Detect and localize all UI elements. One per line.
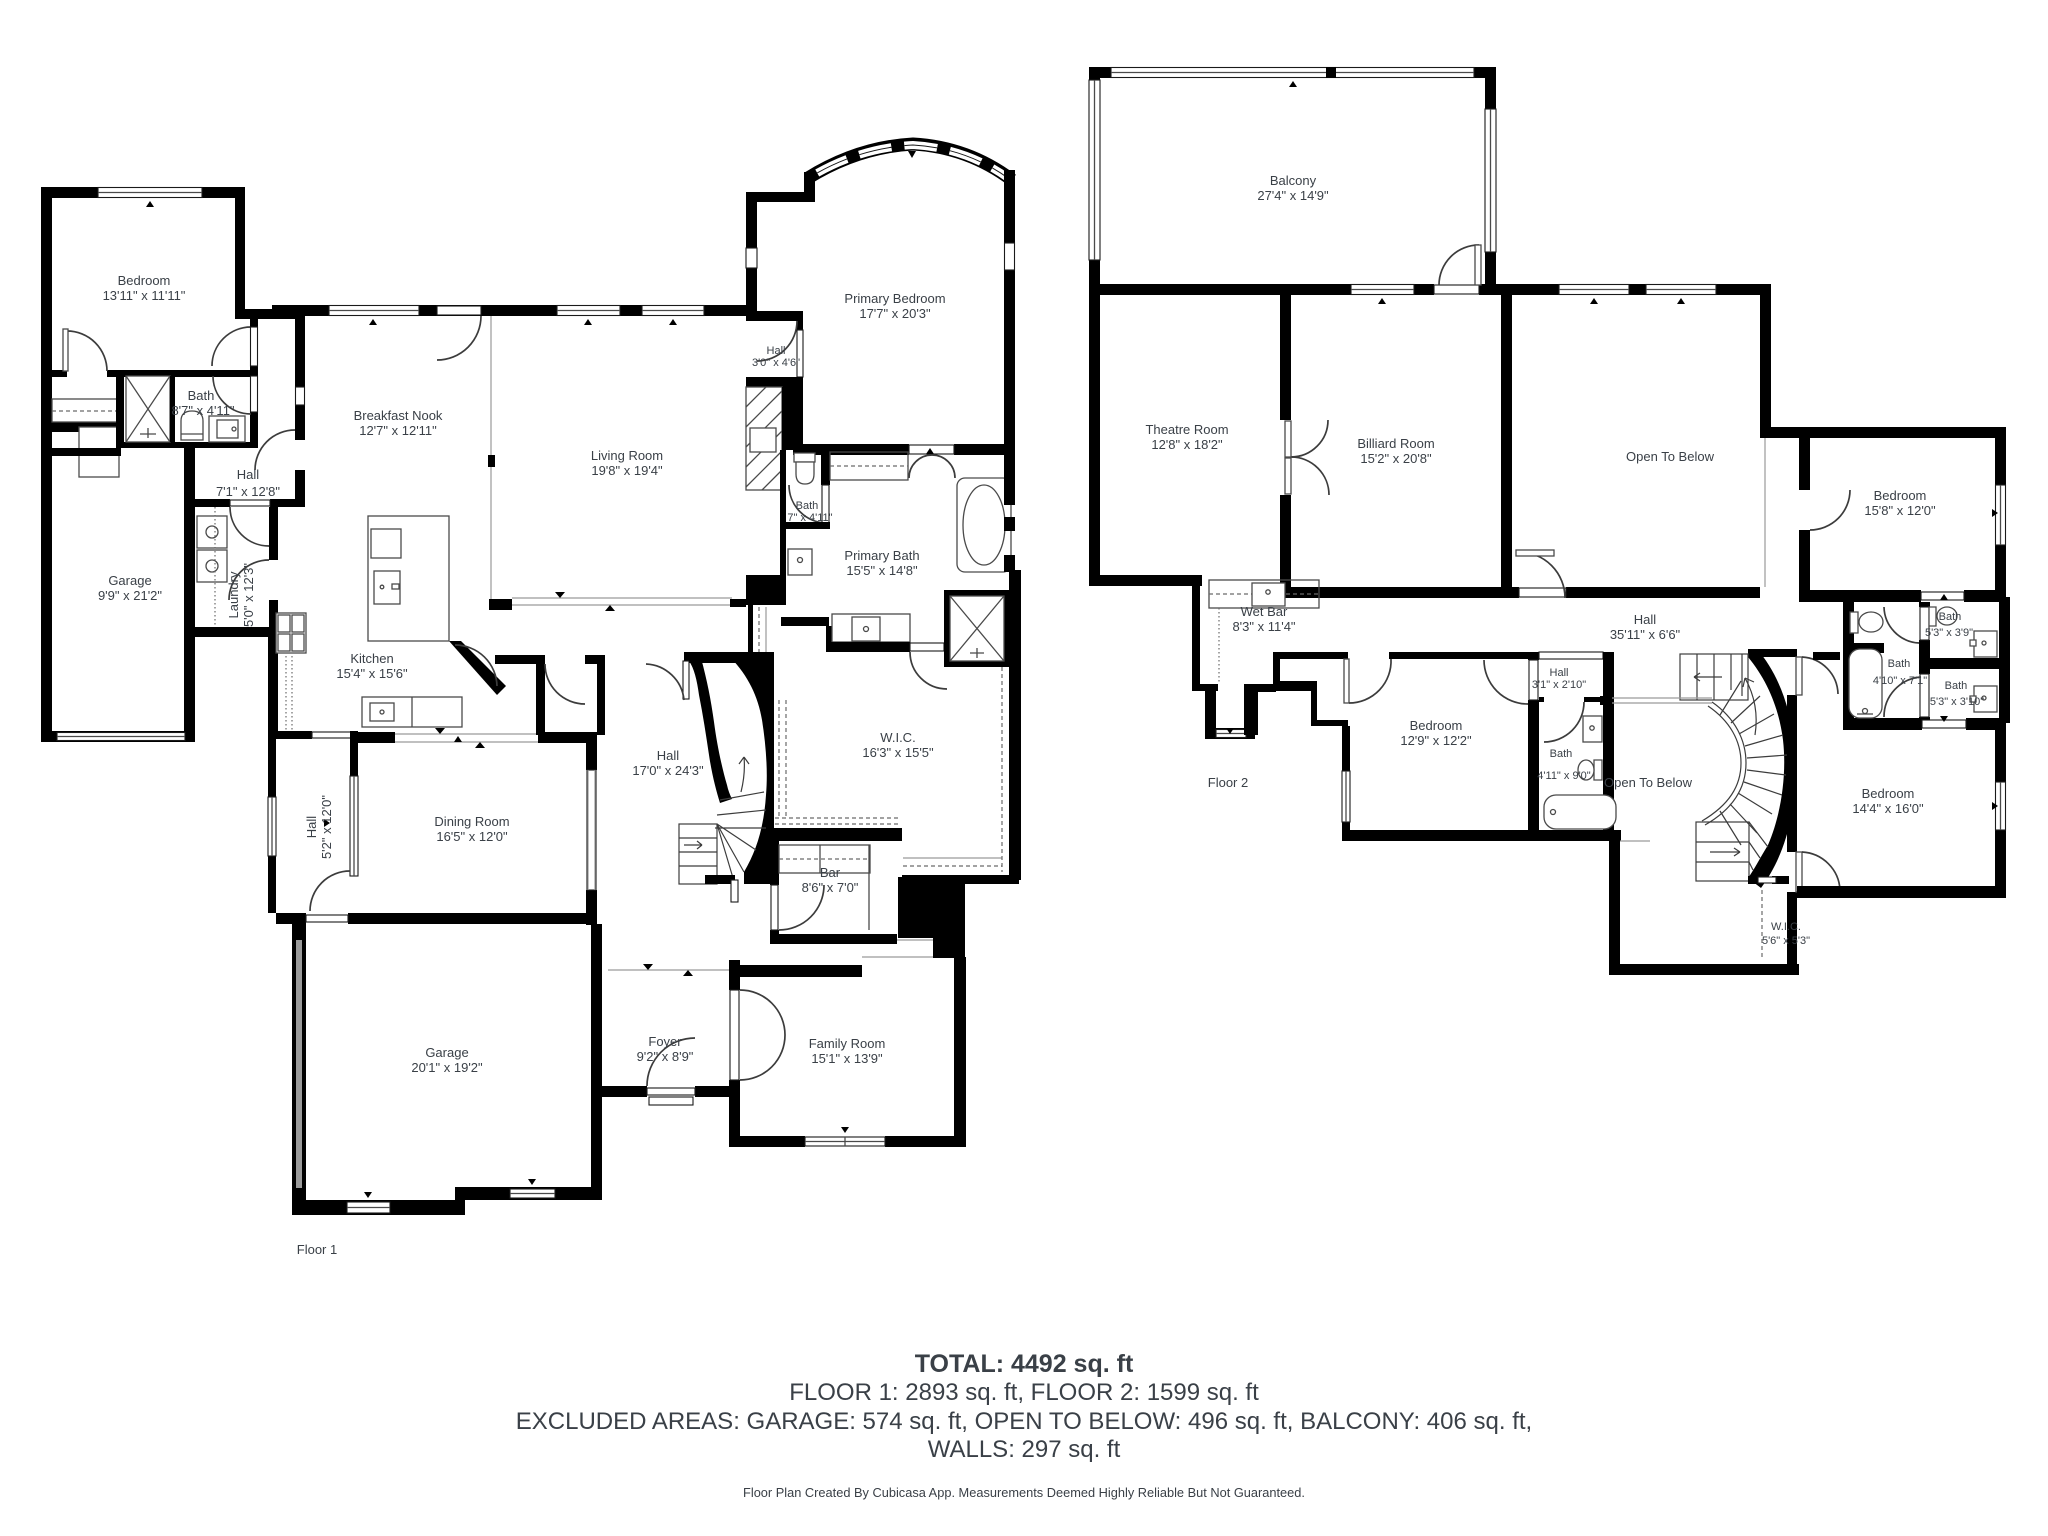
svg-text:Hall: Hall [1550, 667, 1569, 679]
svg-text:Open To Below: Open To Below [1626, 449, 1715, 464]
svg-text:8'3" x 11'4": 8'3" x 11'4" [1232, 619, 1295, 634]
svg-text:12'8" x 18'2": 12'8" x 18'2" [1151, 437, 1223, 452]
svg-text:Bedroom: Bedroom [118, 273, 171, 288]
svg-text:Primary Bath: Primary Bath [844, 548, 919, 563]
svg-text:15'4" x 15'6": 15'4" x 15'6" [336, 666, 408, 681]
svg-text:Bath: Bath [1945, 680, 1968, 692]
svg-text:Bath: Bath [796, 500, 819, 512]
svg-text:35'11" x 6'6": 35'11" x 6'6" [1610, 627, 1681, 642]
svg-text:Garage: Garage [425, 1045, 468, 1060]
svg-text:16'3" x 15'5": 16'3" x 15'5" [862, 745, 934, 760]
svg-text:FLOOR 1: 2893 sq. ft, FLOOR 2:: FLOOR 1: 2893 sq. ft, FLOOR 2: 1599 sq. … [789, 1379, 1259, 1406]
svg-text:4'11" x 9'0": 4'11" x 9'0" [1537, 770, 1590, 782]
svg-text:WALLS: 297 sq. ft: WALLS: 297 sq. ft [928, 1436, 1121, 1463]
svg-text:3'1" x 2'10": 3'1" x 2'10" [1532, 679, 1586, 691]
svg-text:Hall: Hall [1634, 612, 1657, 627]
svg-text:17'0" x 24'3": 17'0" x 24'3" [632, 763, 704, 778]
svg-text:Garage: Garage [108, 573, 151, 588]
svg-text:Family Room: Family Room [809, 1036, 886, 1051]
svg-text:15'1" x 13'9": 15'1" x 13'9" [811, 1051, 883, 1066]
svg-text:Dining Room: Dining Room [434, 814, 509, 829]
svg-text:Bedroom: Bedroom [1410, 718, 1463, 733]
svg-text:Living Room: Living Room [591, 448, 663, 463]
svg-text:Bath: Bath [188, 388, 215, 403]
svg-text:Primary Bedroom: Primary Bedroom [844, 291, 945, 306]
svg-text:12'7" x 12'11": 12'7" x 12'11" [359, 423, 437, 438]
svg-text:Bath: Bath [1888, 658, 1911, 670]
svg-text:Bedroom: Bedroom [1862, 786, 1915, 801]
svg-text:8'7" x 4'11": 8'7" x 4'11" [171, 403, 234, 418]
svg-text:7" x 4'11": 7" x 4'11" [787, 512, 832, 524]
svg-text:19'8" x 19'4": 19'8" x 19'4" [591, 463, 663, 478]
svg-text:7'1" x 12'8": 7'1" x 12'8" [216, 484, 280, 499]
svg-text:15'2" x 20'8": 15'2" x 20'8" [1360, 451, 1432, 466]
svg-text:Balcony: Balcony [1270, 173, 1317, 188]
svg-text:Billiard Room: Billiard Room [1357, 436, 1434, 451]
svg-text:Bar: Bar [820, 865, 841, 880]
svg-text:5'0" x 12'3": 5'0" x 12'3" [241, 563, 256, 627]
svg-text:9'2" x 8'9": 9'2" x 8'9" [637, 1049, 694, 1064]
svg-text:27'4" x 14'9": 27'4" x 14'9" [1257, 188, 1329, 203]
svg-text:20'1" x 19'2": 20'1" x 19'2" [411, 1060, 483, 1075]
svg-text:Floor 1: Floor 1 [297, 1242, 337, 1257]
svg-text:TOTAL: 4492 sq. ft: TOTAL: 4492 sq. ft [915, 1350, 1134, 1378]
svg-text:Floor 2: Floor 2 [1208, 775, 1248, 790]
svg-text:Bath: Bath [1550, 748, 1573, 760]
svg-text:Wet Bar: Wet Bar [1241, 604, 1288, 619]
svg-text:Laundry: Laundry [226, 571, 241, 618]
svg-text:Foyer: Foyer [648, 1034, 682, 1049]
svg-text:12'9" x 12'2": 12'9" x 12'2" [1400, 733, 1472, 748]
svg-text:W.I.C.: W.I.C. [880, 730, 915, 745]
svg-text:5'2" x 12'0": 5'2" x 12'0" [319, 795, 334, 859]
svg-text:Open To Below: Open To Below [1604, 775, 1693, 790]
svg-text:5'6" x 5'3": 5'6" x 5'3" [1762, 935, 1810, 947]
svg-text:Bedroom: Bedroom [1874, 488, 1927, 503]
svg-text:9'9" x 21'2": 9'9" x 21'2" [98, 588, 162, 603]
svg-text:5'3" x 3'9": 5'3" x 3'9" [1925, 627, 1973, 639]
svg-text:3'0" x 4'6": 3'0" x 4'6" [752, 357, 800, 369]
svg-text:Hall: Hall [767, 345, 786, 357]
svg-text:17'7" x 20'3": 17'7" x 20'3" [859, 306, 931, 321]
svg-text:Hall: Hall [657, 748, 680, 763]
svg-text:8'6" x 7'0": 8'6" x 7'0" [802, 880, 859, 895]
svg-text:Hall: Hall [304, 816, 319, 839]
svg-text:Bath: Bath [1939, 611, 1962, 623]
svg-text:Breakfast Nook: Breakfast Nook [354, 408, 443, 423]
svg-text:15'5" x 14'8": 15'5" x 14'8" [846, 563, 918, 578]
svg-text:Theatre Room: Theatre Room [1145, 422, 1228, 437]
svg-text:Kitchen: Kitchen [350, 651, 393, 666]
svg-text:14'4" x 16'0": 14'4" x 16'0" [1852, 801, 1924, 816]
svg-text:Hall: Hall [237, 467, 260, 482]
svg-text:4'10" x 7'1": 4'10" x 7'1" [1873, 675, 1927, 687]
svg-text:13'11" x 11'11": 13'11" x 11'11" [103, 288, 186, 303]
svg-text:W.I.C.: W.I.C. [1771, 921, 1801, 933]
svg-text:16'5" x 12'0": 16'5" x 12'0" [436, 829, 508, 844]
svg-text:5'3" x 3'10": 5'3" x 3'10" [1930, 696, 1984, 708]
svg-text:15'8" x 12'0": 15'8" x 12'0" [1864, 503, 1936, 518]
svg-text:Floor Plan Created By Cubicasa: Floor Plan Created By Cubicasa App. Meas… [743, 1485, 1305, 1500]
svg-text:EXCLUDED AREAS: GARAGE: 574 sq: EXCLUDED AREAS: GARAGE: 574 sq. ft, OPEN… [516, 1408, 1532, 1435]
